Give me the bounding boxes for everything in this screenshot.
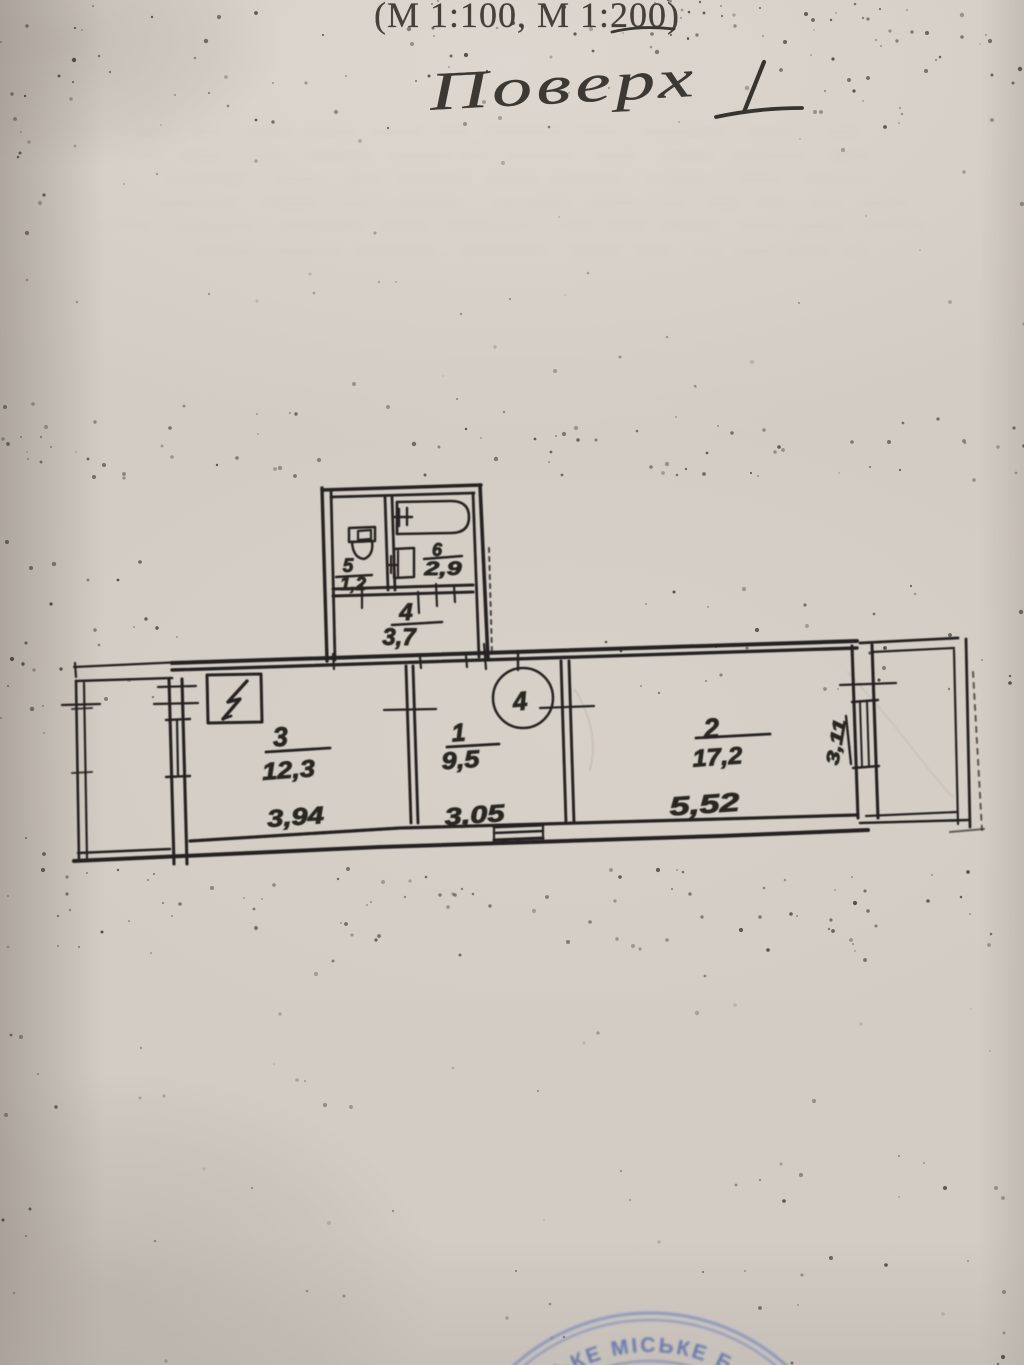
svg-text:(М 1:100, М 1:200): (М 1:100, М 1:200)	[374, 0, 680, 35]
svg-text:1: 1	[451, 719, 467, 748]
svg-text:2: 2	[701, 712, 720, 744]
svg-text:2,9: 2,9	[423, 559, 462, 580]
svg-text:5,52: 5,52	[668, 787, 741, 822]
svg-text:3: 3	[272, 722, 289, 753]
svg-text:17,2: 17,2	[692, 742, 744, 772]
svg-text:9,5: 9,5	[441, 746, 482, 776]
svg-text:4: 4	[398, 599, 412, 626]
svg-text:12,3: 12,3	[261, 755, 316, 786]
svg-text:3,7: 3,7	[382, 624, 417, 651]
svg-text:3,05: 3,05	[444, 800, 507, 831]
svg-text:3,94: 3,94	[266, 802, 325, 833]
